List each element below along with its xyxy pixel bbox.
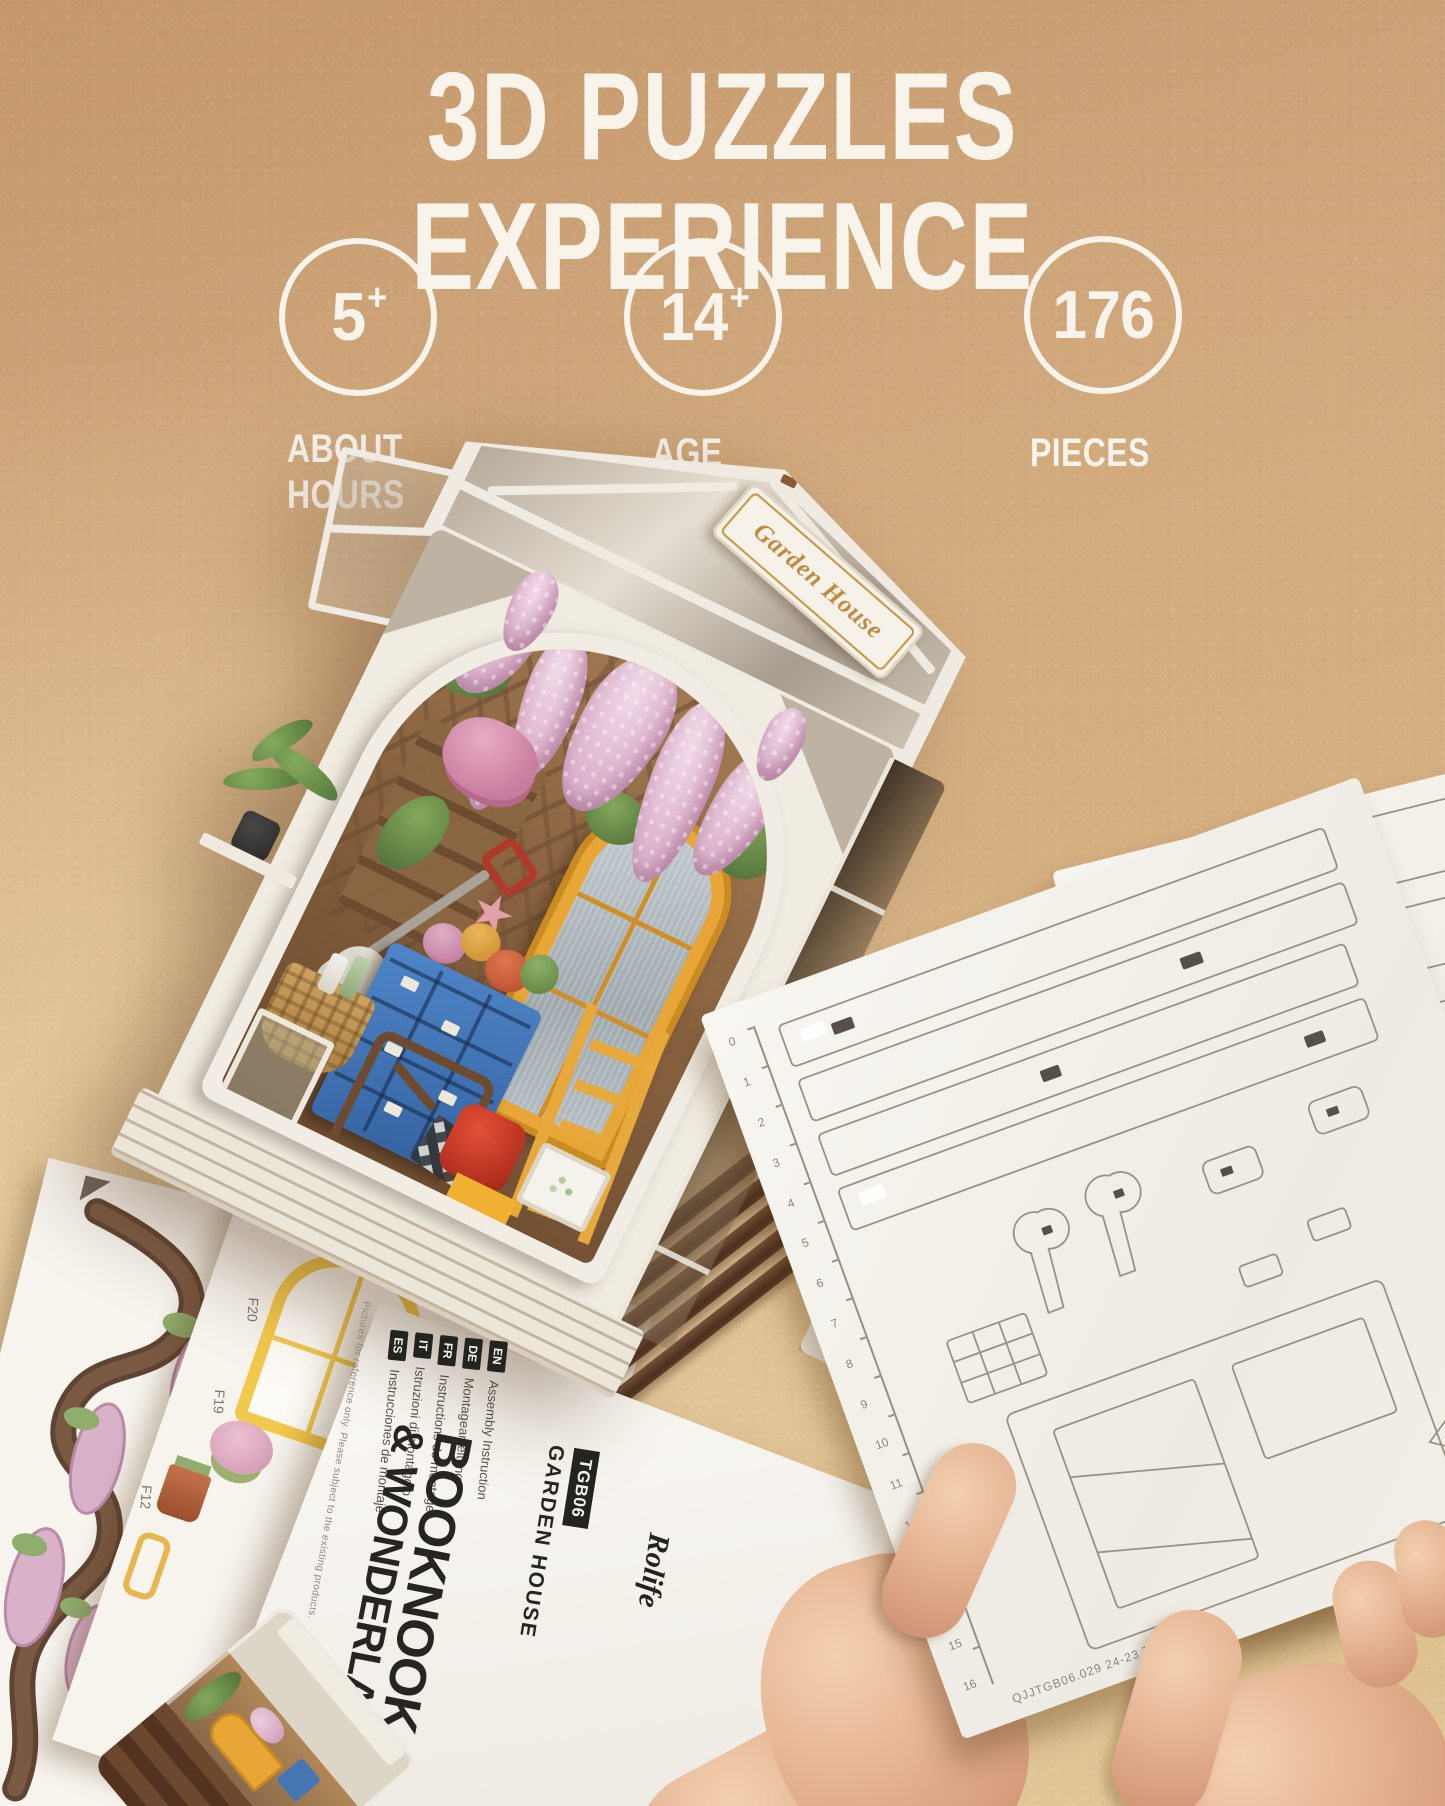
part-label: F12 — [137, 1485, 155, 1510]
part-label: F19 — [210, 1389, 228, 1414]
page-background: 3D PUZZLES EXPERIENCE 5+ ABOUTHOURS 14+ … — [0, 0, 1445, 1806]
ruler-number: 2 — [756, 1114, 767, 1129]
ruler-number: 10 — [873, 1434, 890, 1452]
stat-circle-age: 14+ — [624, 238, 782, 396]
ruler-number: 3 — [770, 1155, 781, 1170]
ruler-number: 1 — [741, 1074, 752, 1089]
ruler-number: 8 — [844, 1356, 855, 1371]
ruler-number: 7 — [829, 1316, 840, 1331]
stat-circle-hours: 5+ — [279, 238, 437, 396]
potted-plant-artwork — [154, 1463, 212, 1525]
clip-artwork — [120, 1529, 174, 1602]
ruler-number: 5 — [800, 1235, 811, 1250]
language-badge: IT — [413, 1332, 433, 1358]
ruler-number: 9 — [858, 1396, 869, 1411]
stat-value-hours: 5+ — [331, 278, 384, 356]
ruler-number: 15 — [946, 1636, 963, 1654]
stat-label-pieces: PIECES — [1030, 430, 1150, 476]
wood-clip — [616, 423, 632, 432]
language-badge: ES — [388, 1330, 409, 1362]
stat-value-pieces: 176 — [1052, 276, 1154, 354]
part-label: F20 — [244, 1297, 262, 1322]
ruler-number: 6 — [814, 1276, 825, 1291]
ruler-number: 4 — [785, 1195, 796, 1210]
stat-value-age: 14+ — [659, 278, 746, 356]
ruler-number: 11 — [888, 1475, 905, 1492]
ruler-number: 0 — [726, 1034, 737, 1049]
language-badge: EN — [487, 1340, 508, 1372]
stat-circle-pieces: 176 — [1024, 236, 1182, 394]
language-badge: FR — [437, 1335, 458, 1367]
language-badge: DE — [462, 1338, 483, 1370]
